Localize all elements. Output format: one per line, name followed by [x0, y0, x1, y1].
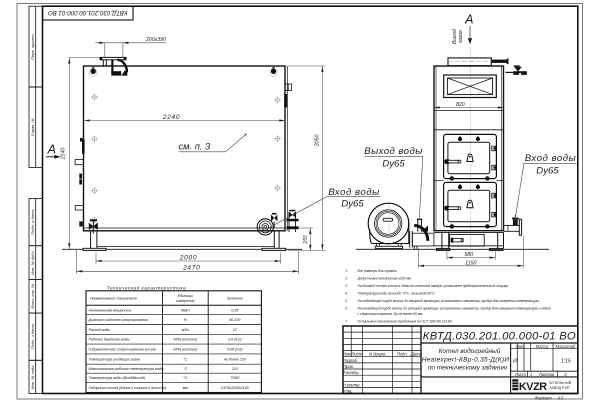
svg-text:A: A: [47, 143, 56, 157]
svg-text:Подп. и дата: Подп. и дата: [30, 209, 35, 235]
svg-text:не более 220: не более 220: [224, 357, 247, 361]
svg-text:200х390: 200х390: [145, 37, 166, 43]
svg-text:Лист: Лист: [514, 372, 526, 377]
svg-text:мм: мм: [183, 386, 189, 390]
svg-text:КВТД.030.201.00.000-01 ВО: КВТД.030.201.00.000-01 ВО: [48, 9, 128, 16]
svg-text:Взам. инв. №: Взам. инв. №: [30, 283, 35, 308]
svg-text:Т.контр.: Т.контр.: [343, 370, 360, 375]
svg-text:Расход воды: Расход воды: [89, 328, 111, 332]
svg-text:Единицы: Единицы: [178, 294, 194, 298]
svg-text:Справ. №: Справ. №: [30, 117, 35, 136]
svg-text:Перв. примен.: Перв. примен.: [30, 33, 35, 60]
svg-text:A: A: [464, 13, 473, 27]
svg-text:Dу65: Dу65: [382, 158, 405, 169]
svg-text:Вход воды: Вход воды: [525, 153, 577, 164]
svg-text:Допустимые отклонения ±100 мм: Допустимые отклонения ±100 мм.: [357, 277, 412, 281]
svg-text:KVZR: KVZR: [519, 381, 547, 393]
svg-text:2050: 2050: [314, 135, 320, 148]
svg-text:Номинальная мощность: Номинальная мощность: [89, 308, 132, 312]
svg-text:820: 820: [456, 102, 465, 108]
svg-text:Выход воды: Выход воды: [364, 146, 422, 157]
svg-text:Инв. № подл.: Инв. № подл.: [30, 364, 35, 389]
svg-text:4: 4: [345, 292, 347, 296]
svg-text:2000: 2000: [179, 254, 197, 261]
svg-text:2: 2: [344, 277, 347, 281]
svg-text:Наименование показателя: Наименование показателя: [90, 296, 137, 300]
svg-text:°С: °С: [183, 357, 187, 361]
svg-text:2470х1150х2140: 2470х1150х2140: [220, 386, 250, 390]
svg-text:70/95: 70/95: [230, 376, 240, 380]
svg-text:Масса: Масса: [536, 344, 549, 349]
svg-text:Все размеры для справок.: Все размеры для справок.: [358, 269, 398, 273]
svg-text:1: 1: [530, 372, 533, 377]
svg-text:МВт: МВт: [181, 308, 190, 312]
svg-text:Изм.: Изм.: [343, 352, 352, 357]
svg-text:Heatexpert-КВр-0,35-Д(К)И: Heatexpert-КВр-0,35-Д(К)И: [422, 356, 510, 363]
svg-text:И: И: [513, 358, 517, 364]
svg-text:1: 1: [345, 269, 347, 273]
svg-text:Котел водогрейный: Котел водогрейный: [439, 347, 501, 355]
svg-text:6: 6: [345, 307, 347, 311]
svg-text:Лист: Лист: [350, 352, 362, 357]
svg-text:Диапазон рабочего регулировани: Диапазон рабочего регулирования: [88, 318, 149, 322]
svg-text:1150: 1150: [465, 260, 476, 266]
svg-text:Разраб.: Разраб.: [343, 358, 358, 363]
svg-text:м3/ч: м3/ч: [182, 328, 190, 332]
svg-text:На боковой стенке котла в обла: На боковой стенке котла в области топочн…: [358, 284, 510, 288]
svg-text:0,35: 0,35: [231, 308, 239, 312]
svg-text:Остальные технические требован: Остальные технические требования по ОСТ …: [358, 320, 453, 324]
svg-text:На подводящей трубе котла, до: На подводящей трубе котла, до запорной а…: [358, 299, 540, 303]
svg-text:2140: 2140: [60, 148, 66, 161]
svg-text:2470: 2470: [182, 265, 200, 272]
svg-text:Температура воды на входе 70°: Температура воды на входе 70°С, на выход…: [358, 292, 436, 296]
svg-text:0,6 (6,0): 0,6 (6,0): [228, 338, 242, 342]
svg-text:по техническому заданию: по техническому заданию: [428, 364, 507, 372]
svg-text:Габариты котла (длина х ширина: Габариты котла (длина х ширина х высота): [89, 386, 167, 390]
svg-text:А3: А3: [557, 395, 564, 400]
svg-text:°С: °С: [183, 376, 187, 380]
svg-text:измерения: измерения: [176, 299, 194, 303]
svg-text:Температура воды (Вход/Выход): Температура воды (Вход/Выход): [89, 376, 146, 380]
svg-text:2: 2: [563, 372, 567, 377]
svg-text:см. п. 3: см. п. 3: [179, 142, 211, 152]
svg-text:3: 3: [345, 284, 347, 288]
svg-text:5: 5: [345, 299, 347, 303]
svg-text:12: 12: [233, 328, 238, 332]
svg-text:газов: газов: [458, 30, 464, 43]
svg-text:0,06 (0,6): 0,06 (0,6): [227, 347, 243, 351]
svg-text:Техническая характеристика: Техническая характеристика: [107, 286, 186, 291]
svg-text:115: 115: [232, 367, 239, 371]
svg-text:255: 255: [303, 235, 309, 245]
svg-text:КОТЕЛЬНЫЙ: КОТЕЛЬНЫЙ: [549, 381, 571, 385]
svg-text:1:15: 1:15: [561, 358, 571, 364]
svg-text:МПа (кгс/см2): МПа (кгс/см2): [173, 338, 198, 342]
svg-text:N докум.: N докум.: [369, 352, 386, 357]
svg-text:Утв.: Утв.: [343, 389, 353, 394]
svg-text:Инв. № дубл.: Инв. № дубл.: [30, 250, 35, 275]
svg-text:2240: 2240: [162, 114, 180, 121]
svg-text:Dу65: Dу65: [536, 165, 559, 176]
svg-text:Рабочее давление воды: Рабочее давление воды: [89, 338, 130, 342]
svg-text:Н.контр.: Н.контр.: [343, 382, 361, 387]
svg-text:Dу65: Dу65: [341, 199, 364, 210]
svg-text:7: 7: [345, 320, 348, 324]
svg-text:580: 580: [464, 252, 473, 258]
svg-text:Гидравлическое сопротивление к: Гидравлическое сопротивление котла: [89, 347, 156, 351]
svg-text:Подп.: Подп.: [397, 352, 408, 357]
svg-text:Лит.: Лит.: [515, 344, 526, 349]
svg-text:50-100: 50-100: [229, 318, 241, 322]
svg-text:МПа (кгс/см2): МПа (кгс/см2): [173, 347, 198, 351]
svg-text:На отводящей трубе котла, до з: На отводящей трубе котла, до запорной ар…: [358, 307, 551, 311]
svg-text:Листов: Листов: [538, 372, 555, 377]
svg-text:°С: °С: [183, 367, 187, 371]
svg-text:Температура уходящих газов: Температура уходящих газов: [89, 357, 141, 361]
svg-text:Максимальная рабочая температу: Максимальная рабочая температура воды: [89, 367, 164, 371]
svg-text:%: %: [184, 318, 188, 322]
svg-text:ЗАВОД РЭП: ЗАВОД РЭП: [549, 386, 570, 390]
svg-text:Подп. и дата: Подп. и дата: [30, 323, 35, 349]
svg-text:Дата: Дата: [410, 352, 423, 357]
svg-text:Значение: Значение: [227, 296, 243, 300]
svg-text:Пров.: Пров.: [343, 364, 354, 369]
svg-text:с обратным клапаном. Dу не ме: с обратным клапаном. Dу не менее 50 мм.: [358, 312, 424, 316]
svg-text:Масштаб: Масштаб: [556, 344, 576, 349]
svg-text:Формат: Формат: [535, 395, 553, 400]
svg-text:КВТД.030.201.00.000-01 ВО: КВТД.030.201.00.000-01 ВО: [423, 330, 576, 342]
